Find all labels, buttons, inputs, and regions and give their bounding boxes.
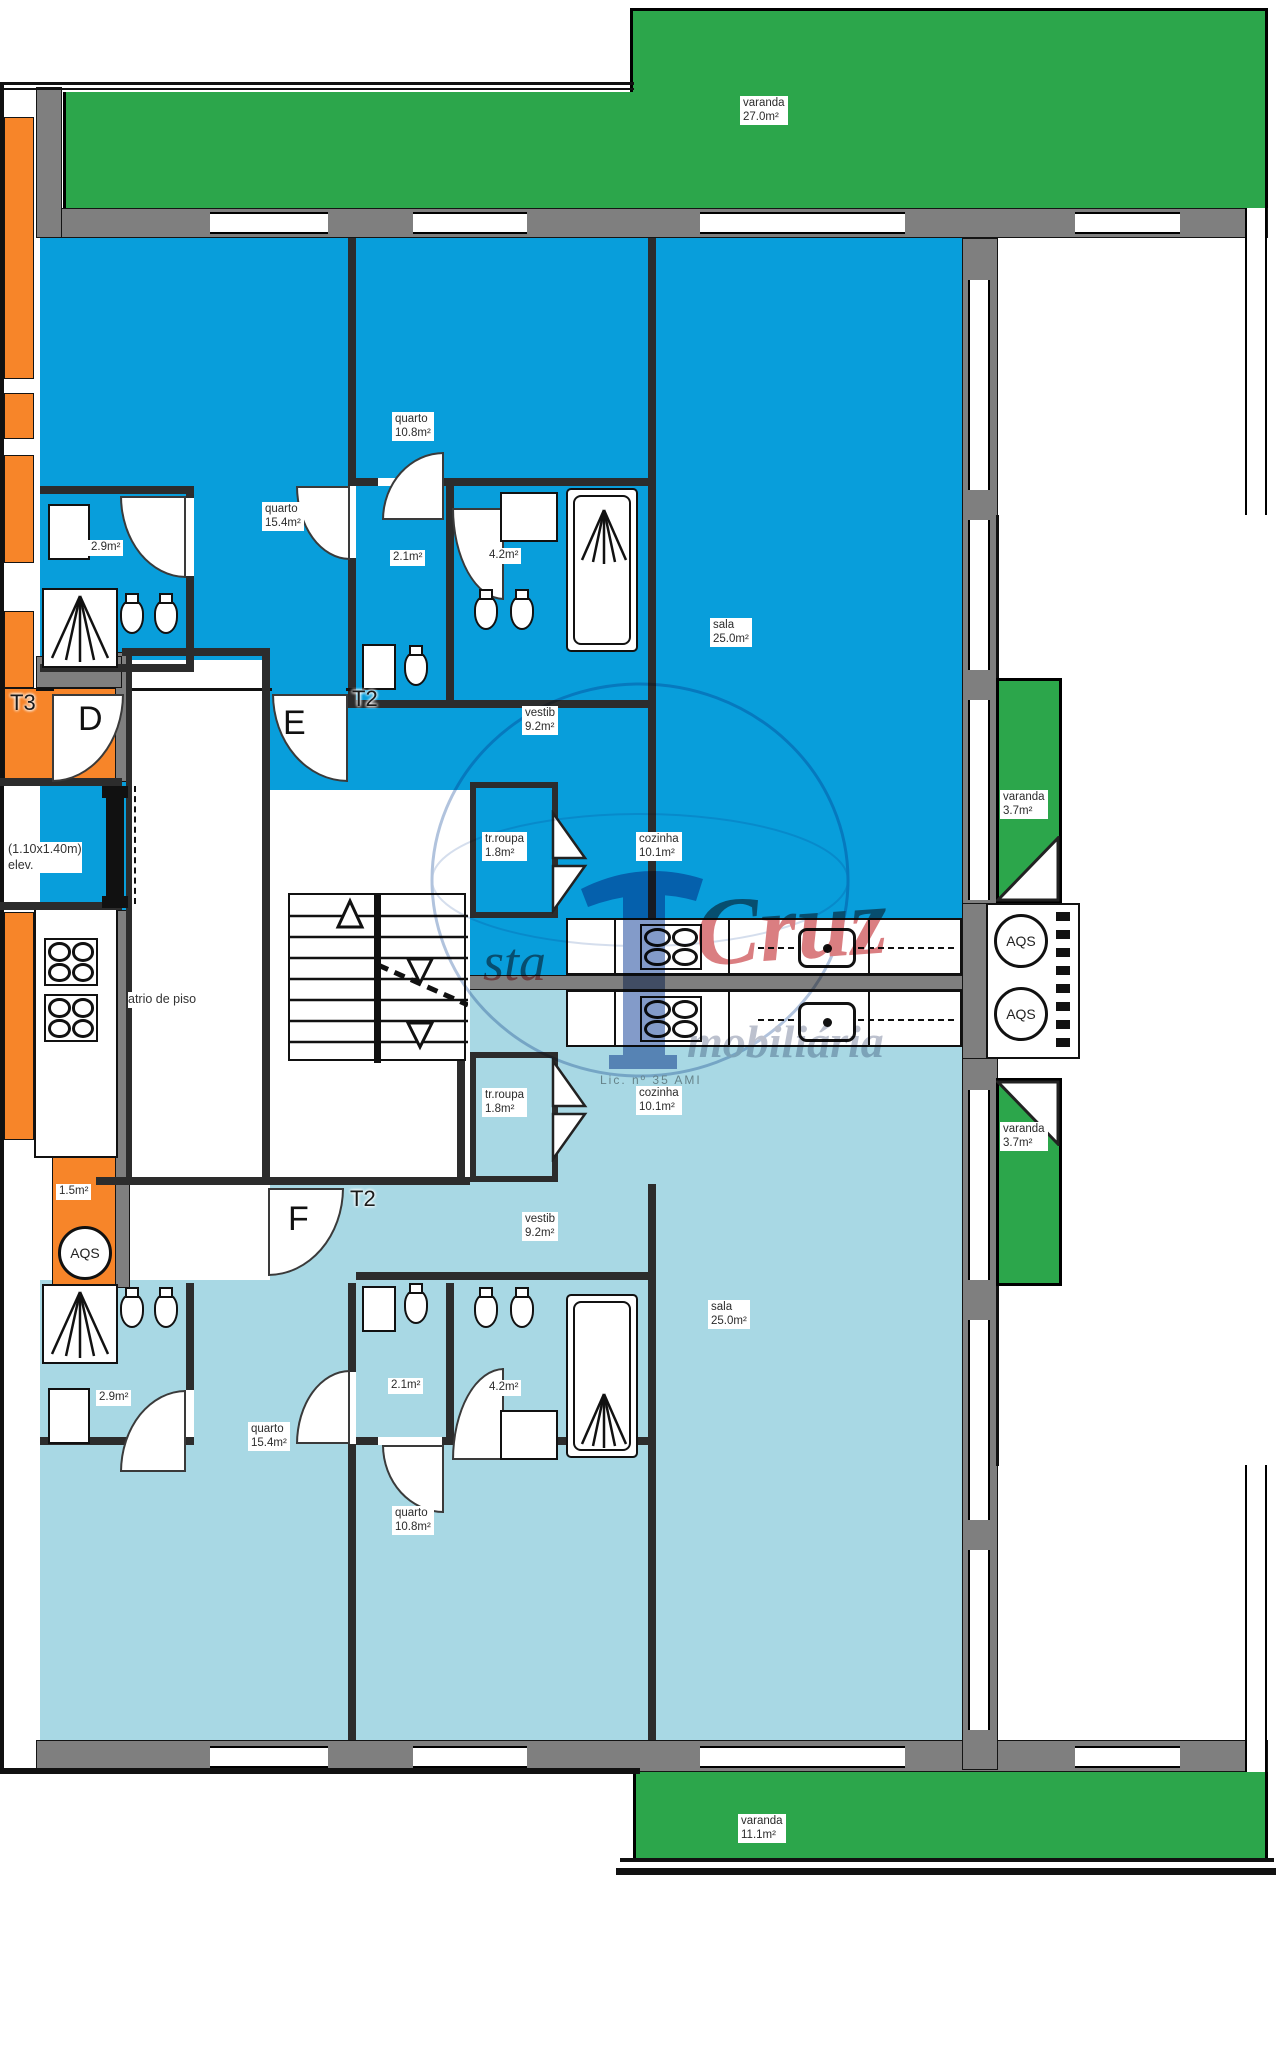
atrium-left-wall xyxy=(126,652,132,1185)
sink-icon xyxy=(798,928,856,968)
label-bedroom-large-upper: quarto 15.4m² xyxy=(262,502,304,531)
window xyxy=(210,212,328,234)
bidet-icon xyxy=(510,596,534,630)
t3-room-strip xyxy=(4,611,34,688)
room-area: 2.9m² xyxy=(91,541,120,555)
balcony-bottom-varanda xyxy=(633,1772,1268,1858)
room-name: cozinha xyxy=(639,1087,679,1101)
toilet-icon xyxy=(474,596,498,630)
room-area: 10.1m² xyxy=(639,1101,679,1115)
elevator-shaft-icon xyxy=(102,786,128,798)
label-bath-b-upper: 2.1m² xyxy=(390,550,425,566)
room-area: 15.4m² xyxy=(265,517,301,531)
toilet-icon xyxy=(404,652,428,686)
toilet-icon xyxy=(404,1290,428,1324)
room-name: varanda xyxy=(1003,791,1045,805)
partition xyxy=(648,1184,656,1280)
label-t3-wc: 1.5m² xyxy=(56,1184,91,1200)
wall-edge xyxy=(996,1286,999,1466)
label-balcony-bottom: varanda 11.1m² xyxy=(738,1814,786,1843)
room-name: varanda xyxy=(1003,1123,1045,1137)
room-area: 1.8m² xyxy=(485,1103,524,1117)
boundary-line xyxy=(620,1858,1274,1862)
partition xyxy=(356,1272,656,1280)
room-name: varanda xyxy=(741,1815,783,1829)
shaft-dashed-line xyxy=(134,786,136,904)
room-name: cozinha xyxy=(639,833,679,847)
counter-dash-line xyxy=(758,947,954,949)
label-laundry-lower: tr.roupa 1.8m² xyxy=(482,1088,527,1117)
basin-icon xyxy=(362,1286,396,1332)
toilet-icon xyxy=(120,1294,144,1328)
counter-divider xyxy=(614,992,616,1045)
toilet-icon xyxy=(474,1294,498,1328)
stove-icon xyxy=(44,938,98,986)
boundary-line xyxy=(0,1768,640,1774)
atrium-right-wall xyxy=(262,652,270,1180)
counter-divider xyxy=(728,920,730,973)
basin-icon xyxy=(500,1410,558,1460)
partition xyxy=(446,1283,454,1445)
corridor-wall-line xyxy=(36,688,54,691)
room-area: 10.8m² xyxy=(395,427,431,441)
room-area: 1.8m² xyxy=(485,847,524,861)
elevator-shaft-icon xyxy=(106,786,124,908)
partition xyxy=(648,700,656,918)
t3-room-strip xyxy=(4,912,34,1140)
toilet-icon xyxy=(120,600,144,634)
unit-door-letter-e: E xyxy=(283,706,306,740)
label-bath-c-upper: 4.2m² xyxy=(486,548,521,564)
elevator-shaft-icon xyxy=(102,896,128,908)
room-area: 2.9m² xyxy=(99,1391,128,1405)
unit-type-t2-upper: T2 xyxy=(352,688,378,710)
partition xyxy=(348,1283,356,1740)
laundry-wall xyxy=(470,782,476,918)
room-area: 27.0m² xyxy=(743,111,785,125)
room-area: 2.1m² xyxy=(393,551,422,565)
room-name: quarto xyxy=(265,503,301,517)
room-area: 25.0m² xyxy=(713,633,749,647)
window xyxy=(968,520,990,670)
balcony-top-varanda xyxy=(630,8,1268,96)
door-gap xyxy=(186,1390,194,1437)
room-area: 4.2m² xyxy=(489,1381,518,1395)
room-name: sala xyxy=(713,619,749,633)
unit-door-letter-d: D xyxy=(78,702,103,736)
partition xyxy=(648,1280,656,1740)
label-laundry-upper: tr.roupa 1.8m² xyxy=(482,832,527,861)
window xyxy=(968,1090,990,1280)
counter-divider xyxy=(614,920,616,973)
basin-icon xyxy=(48,1388,90,1444)
room-name: vestib xyxy=(525,707,555,721)
room-name: quarto xyxy=(395,1507,431,1521)
label-living-lower: sala 25.0m² xyxy=(708,1300,750,1329)
t3-room-strip xyxy=(4,455,34,563)
facade-window-strip xyxy=(1245,1465,1267,1772)
shower-icon xyxy=(578,506,630,566)
basin-icon xyxy=(500,492,558,542)
basin-icon xyxy=(48,504,90,560)
stove-icon xyxy=(640,924,702,970)
staircase xyxy=(288,893,466,1061)
shower-icon xyxy=(578,1390,630,1450)
label-balcony-top: varanda 27.0m² xyxy=(740,96,788,125)
window xyxy=(968,700,990,900)
laundry-wall xyxy=(470,1052,476,1182)
aqs-label: AQS xyxy=(1006,933,1036,949)
room-area: 2.1m² xyxy=(391,1379,420,1393)
room-area: 10.1m² xyxy=(639,847,679,861)
aqs-label: AQS xyxy=(70,1245,100,1261)
stove-icon xyxy=(44,994,98,1042)
kitchen-door-lower xyxy=(550,1058,590,1162)
room-area: 25.0m² xyxy=(711,1315,747,1329)
kitchen-counter-lower xyxy=(566,990,962,1047)
boundary-line xyxy=(0,84,4,1774)
label-balcony-side-lower: varanda 3.7m² xyxy=(1000,1122,1048,1151)
window xyxy=(1075,1746,1180,1768)
room-name: vestib xyxy=(525,1213,555,1227)
label-bedroom-small-lower: quarto 10.8m² xyxy=(392,1506,434,1535)
window xyxy=(1075,212,1180,234)
laundry-wall xyxy=(470,1052,558,1058)
unit-type-t3: T3 xyxy=(10,692,36,714)
wall-left-top xyxy=(36,87,62,238)
door-gap xyxy=(378,1437,442,1445)
room-area: 9.2m² xyxy=(525,721,555,735)
atrium-floor xyxy=(126,660,262,1180)
window xyxy=(700,212,905,234)
aqs-tank-upper: AQS xyxy=(994,914,1048,968)
label-bedroom-small-upper: quarto 10.8m² xyxy=(392,412,434,441)
kitchen-counter-upper xyxy=(566,918,962,975)
window xyxy=(968,1550,990,1730)
window xyxy=(210,1746,328,1768)
wall-edge xyxy=(996,515,999,678)
window xyxy=(413,212,527,234)
room-area: 15.4m² xyxy=(251,1437,287,1451)
room-area: 11.1m² xyxy=(741,1829,783,1843)
aqs-tank-lower: AQS xyxy=(994,987,1048,1041)
label-hall-upper: vestib 9.2m² xyxy=(522,706,558,735)
label-elevator: (1.10x1.40m) elev. xyxy=(8,842,82,873)
laundry-wall xyxy=(470,912,558,918)
wall-mid-band xyxy=(457,975,998,990)
room-area: 10.8m² xyxy=(395,1521,431,1535)
wall-hatch xyxy=(1056,912,1070,1048)
facade-window-strip xyxy=(1245,208,1267,515)
label-bedroom-large-lower: quarto 15.4m² xyxy=(248,1422,290,1451)
shower-icon xyxy=(46,592,114,664)
unit-door-letter-f: F xyxy=(288,1202,309,1236)
label-atrium: atrio de piso xyxy=(128,992,196,1008)
partition xyxy=(356,700,656,708)
room-area: 9.2m² xyxy=(525,1227,555,1241)
room-name: sala xyxy=(711,1301,747,1315)
label-bath-a-upper: 2.9m² xyxy=(88,540,123,556)
balcony-top-varanda-band xyxy=(63,92,1268,208)
boundary-line xyxy=(616,1868,1276,1875)
aqs-label: AQS xyxy=(1006,1006,1036,1022)
bidet-icon xyxy=(154,600,178,634)
label-bath-b-lower: 2.1m² xyxy=(388,1378,423,1394)
shower-icon xyxy=(46,1288,114,1360)
kitchen-door-upper xyxy=(550,810,590,914)
laundry-wall xyxy=(470,782,558,788)
window xyxy=(968,280,990,490)
partition xyxy=(648,238,656,700)
door-gap xyxy=(186,498,194,576)
partition xyxy=(40,486,193,494)
window xyxy=(413,1746,527,1768)
sink-icon xyxy=(798,1002,856,1042)
room-area: 3.7m² xyxy=(1003,1137,1045,1151)
room-name: quarto xyxy=(395,413,431,427)
label-bath-a-lower: 2.9m² xyxy=(96,1390,131,1406)
room-name: tr.roupa xyxy=(485,1089,524,1103)
balcony-door-upper xyxy=(996,836,1060,902)
floor-plan: AQS AQS AQS xyxy=(0,0,1280,2069)
corridor-wall-line xyxy=(126,688,272,691)
bidet-icon xyxy=(154,1294,178,1328)
counter-divider xyxy=(728,992,730,1045)
partition xyxy=(348,238,356,708)
basin-icon xyxy=(362,644,396,690)
boundary-line xyxy=(0,88,634,90)
room-name: varanda xyxy=(743,97,785,111)
room-name: quarto xyxy=(251,1423,287,1437)
room-area: 1.5m² xyxy=(59,1185,88,1199)
label-kitchen-lower: cozinha 10.1m² xyxy=(636,1086,682,1115)
window xyxy=(968,1320,990,1520)
boundary-line xyxy=(0,82,634,85)
staircase-drawing xyxy=(290,895,468,1063)
elevator-text: elev. xyxy=(8,858,82,874)
core-bottom-wall xyxy=(96,1177,470,1185)
label-living-upper: sala 25.0m² xyxy=(710,618,752,647)
room-area: 4.2m² xyxy=(489,549,518,563)
wall-aqs-nook xyxy=(962,903,988,1059)
elevator-dims: (1.10x1.40m) xyxy=(8,842,82,858)
t3-room-strip xyxy=(4,393,34,439)
label-kitchen-upper: cozinha 10.1m² xyxy=(636,832,682,861)
lower-apartment-fill xyxy=(40,1280,965,1740)
room-area: 3.7m² xyxy=(1003,805,1045,819)
label-bath-c-lower: 4.2m² xyxy=(486,1380,521,1396)
atrium-top-wall xyxy=(122,648,270,656)
t3-room-strip xyxy=(4,117,34,379)
counter-dash-line xyxy=(758,1019,954,1021)
label-hall-lower: vestib 9.2m² xyxy=(522,1212,558,1241)
aqs-tank-t3: AQS xyxy=(58,1226,112,1280)
window xyxy=(700,1746,905,1768)
bidet-icon xyxy=(510,1294,534,1328)
unit-type-t2-lower: T2 xyxy=(350,1188,376,1210)
room-name: tr.roupa xyxy=(485,833,524,847)
label-balcony-side-upper: varanda 3.7m² xyxy=(1000,790,1048,819)
stove-icon xyxy=(640,996,702,1042)
laundry-wall xyxy=(470,1176,558,1182)
